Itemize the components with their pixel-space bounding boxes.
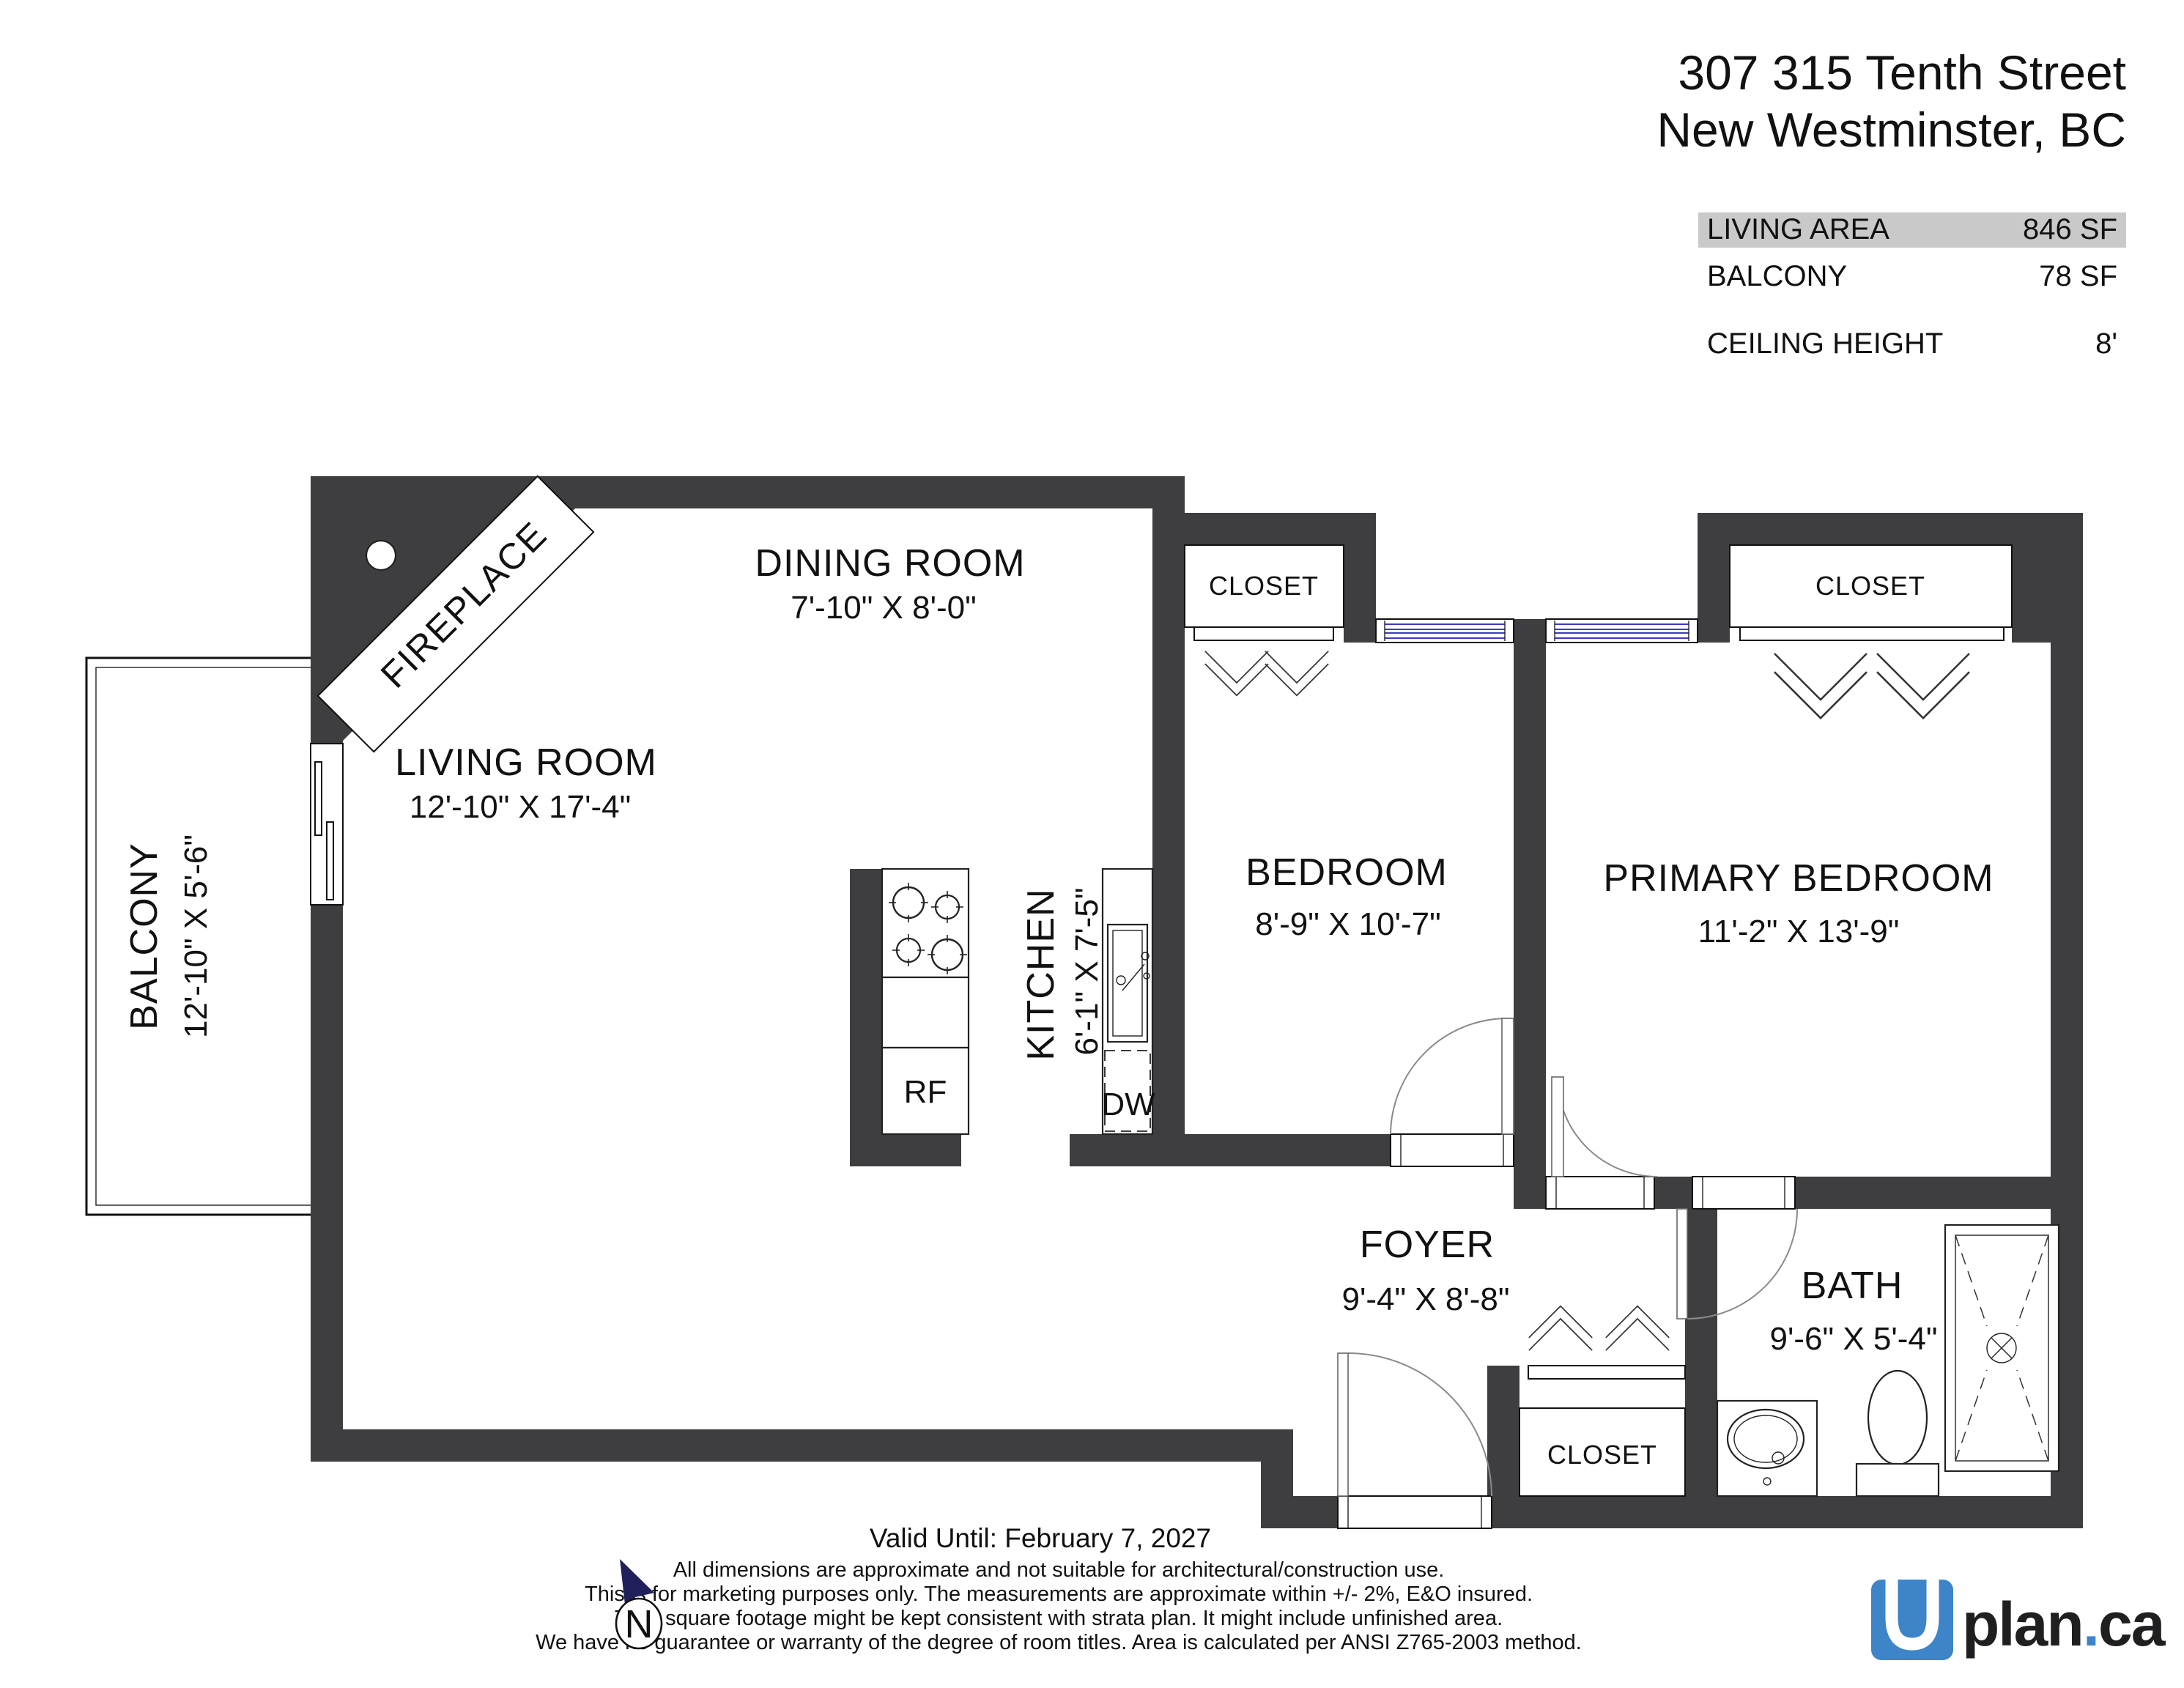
bath-dims: 9'-6" X 5'-4" (1769, 1321, 1937, 1357)
balcony-label: BALCONY (123, 843, 166, 1030)
kitchen-dims: 6'-1" X 7'-5" (1069, 887, 1105, 1055)
foyer-closet-rod (1528, 1366, 1685, 1379)
dining-room-dims: 7'-10" X 8'-0" (791, 590, 977, 626)
toilet-bowl (1868, 1371, 1927, 1465)
stove-counter (882, 869, 969, 977)
primary-closet-rod (1740, 627, 2004, 640)
toilet-tank (1857, 1464, 1939, 1496)
disclaimer-line-2: This is for marketing purposes only. The… (585, 1582, 1533, 1606)
wall-kitchen-stub (850, 869, 882, 1134)
wall-left-lower (311, 905, 343, 1429)
valid-until: Valid Until: February 7, 2027 (870, 1523, 1211, 1553)
dishwasher-label: DW (1101, 1087, 1155, 1122)
wall-dining-bedroom (1152, 476, 1185, 1166)
bath-sink (1728, 1410, 1804, 1468)
wall-living-bottom (311, 1429, 1293, 1462)
uplan-logo: plan.ca (1871, 1580, 2166, 1660)
wall-bath-left (1685, 1209, 1717, 1496)
primary-door-sill (1546, 1177, 1654, 1209)
balcony-dims: 12'-10" X 5'-6" (178, 834, 214, 1038)
bedroom-label: BEDROOM (1245, 851, 1448, 894)
disclaimer-line-4: We have no guarantee or warranty of the … (536, 1631, 1582, 1654)
wall-foyercloset-left (1487, 1366, 1519, 1496)
primary-door-arc (1558, 1077, 1657, 1177)
entry-door-leaf (1338, 1353, 1348, 1496)
wall-bottom-b (1492, 1496, 2083, 1528)
wall-primcloset-left (1698, 545, 1730, 643)
hanger-icon (1877, 654, 1969, 718)
entry-door-arc (1348, 1353, 1492, 1496)
balcony-area-label: BALCONY (1707, 260, 1847, 292)
hanger-icon (1265, 651, 1328, 695)
bedroom-window (1376, 619, 1514, 643)
foyer-closet-label: CLOSET (1547, 1440, 1657, 1470)
kitchen-fixtures: RF DW (882, 869, 1155, 1134)
fireplace-dot (366, 541, 396, 570)
primary-bedroom-label: PRIMARY BEDROOM (1603, 857, 1994, 900)
disclaimer-line-3: Total square footage might be kept consi… (615, 1607, 1503, 1630)
foyer-dims: 9'-4" X 8'-8" (1341, 1281, 1509, 1317)
living-area-value: 846 SF (2023, 213, 2117, 245)
wall-bedroom-bottom (1070, 1134, 1391, 1166)
footer: Valid Until: February 7, 2027 All dimens… (536, 1523, 2166, 1660)
primary-window (1546, 619, 1698, 643)
ceiling-height-value: 8' (2095, 327, 2117, 360)
wall-primcloset-top (1698, 513, 2083, 545)
bath-door-leaf (1677, 1209, 1687, 1319)
wall-bathtop-stub (1654, 1177, 1692, 1209)
foyer-label: FOYER (1360, 1224, 1495, 1266)
living-room-label: LIVING ROOM (395, 741, 657, 784)
wall-bathtop-right (1795, 1177, 2083, 1209)
kitchen-counter-mid (882, 977, 969, 1048)
hanger-icon (1529, 1306, 1592, 1350)
bath-door-sill (1692, 1177, 1795, 1209)
north-letter: N (625, 1602, 654, 1646)
bedroom-dims: 8'-9" X 10'-7" (1255, 906, 1441, 942)
bedroom-door-sill (1391, 1134, 1514, 1166)
primary-bedroom-dims: 11'-2" X 13'-9" (1698, 914, 1900, 949)
disclaimer-line-1: All dimensions are approximate and not s… (673, 1558, 1445, 1582)
living-area-label: LIVING AREA (1707, 213, 1889, 245)
ceiling-height-label: CEILING HEIGHT (1707, 327, 1943, 360)
area-table: LIVING AREA 846 SF BALCONY 78 SF CEILING… (1698, 212, 2126, 360)
uplan-logo-text: plan.ca (1962, 1590, 2166, 1659)
wall-top (311, 476, 1185, 508)
floorplan-canvas: 307 315 Tenth Street New Westminster, BC… (0, 0, 2184, 1688)
bedroom-closet-label: CLOSET (1209, 571, 1319, 601)
address-line1: 307 315 Tenth Street (1678, 45, 2126, 100)
wall-bedroom-primary (1514, 619, 1546, 1209)
living-room-dims: 12'-10" X 17'-4" (410, 789, 631, 825)
hanger-icon (1774, 654, 1867, 718)
bedroom-closet-rod (1194, 627, 1333, 640)
balcony-slider-panel (327, 822, 333, 900)
bedroom-door-leaf (1502, 1018, 1514, 1134)
hanger-icon (1606, 1306, 1669, 1350)
dining-room-label: DINING ROOM (755, 542, 1025, 585)
wall-kitchen-bottom (850, 1134, 961, 1166)
wall-bedcloset-right (1344, 513, 1376, 643)
address-line2: New Westminster, BC (1656, 103, 2126, 157)
header: 307 315 Tenth Street New Westminster, BC… (1656, 45, 2126, 360)
entry-door-sill (1338, 1496, 1492, 1528)
fridge-label: RF (904, 1074, 947, 1110)
primary-closet-label: CLOSET (1815, 571, 1925, 601)
bath-label: BATH (1802, 1265, 1903, 1307)
primary-door-leaf (1552, 1077, 1563, 1177)
kitchen-sink (1108, 925, 1147, 1042)
hanger-icon (1205, 651, 1268, 695)
balcony-area-value: 78 SF (2039, 260, 2117, 292)
balcony-slider-panel (315, 762, 322, 835)
wall-bottom-a (1261, 1496, 1338, 1528)
bedroom-door-arc (1391, 1018, 1508, 1134)
kitchen-label: KITCHEN (1020, 888, 1062, 1060)
